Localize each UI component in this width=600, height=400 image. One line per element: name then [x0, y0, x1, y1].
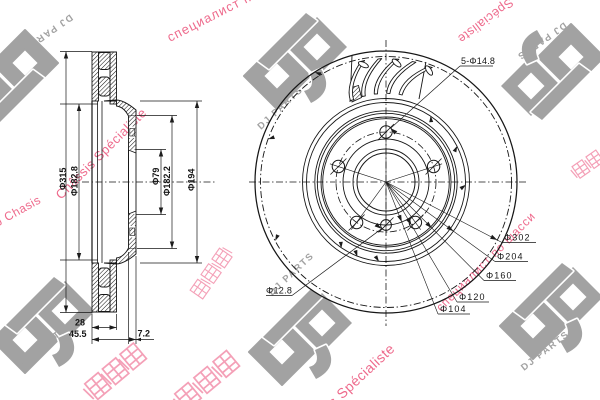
- svg-text:Φ194: Φ194: [187, 169, 197, 191]
- svg-text:DJ Chasis: DJ Chasis: [0, 193, 43, 234]
- svg-text:Φ182.8: Φ182.8: [70, 166, 80, 196]
- svg-text:45.5: 45.5: [69, 329, 87, 339]
- svg-text:Φ79: Φ79: [151, 168, 161, 185]
- svg-text:Φ204: Φ204: [497, 252, 524, 262]
- svg-text:5-Φ14.8: 5-Φ14.8: [461, 56, 495, 66]
- svg-text:Φ120: Φ120: [459, 292, 486, 302]
- svg-text:7.2: 7.2: [138, 329, 151, 339]
- svg-text:Φ12.8: Φ12.8: [266, 286, 292, 296]
- svg-text:Φ182.2: Φ182.2: [162, 166, 172, 196]
- svg-text:28: 28: [75, 318, 85, 328]
- svg-text:Φ302: Φ302: [504, 233, 531, 243]
- svg-text:Φ315: Φ315: [58, 168, 68, 190]
- svg-text:Φ160: Φ160: [486, 271, 513, 281]
- svg-text:Φ104: Φ104: [440, 304, 467, 314]
